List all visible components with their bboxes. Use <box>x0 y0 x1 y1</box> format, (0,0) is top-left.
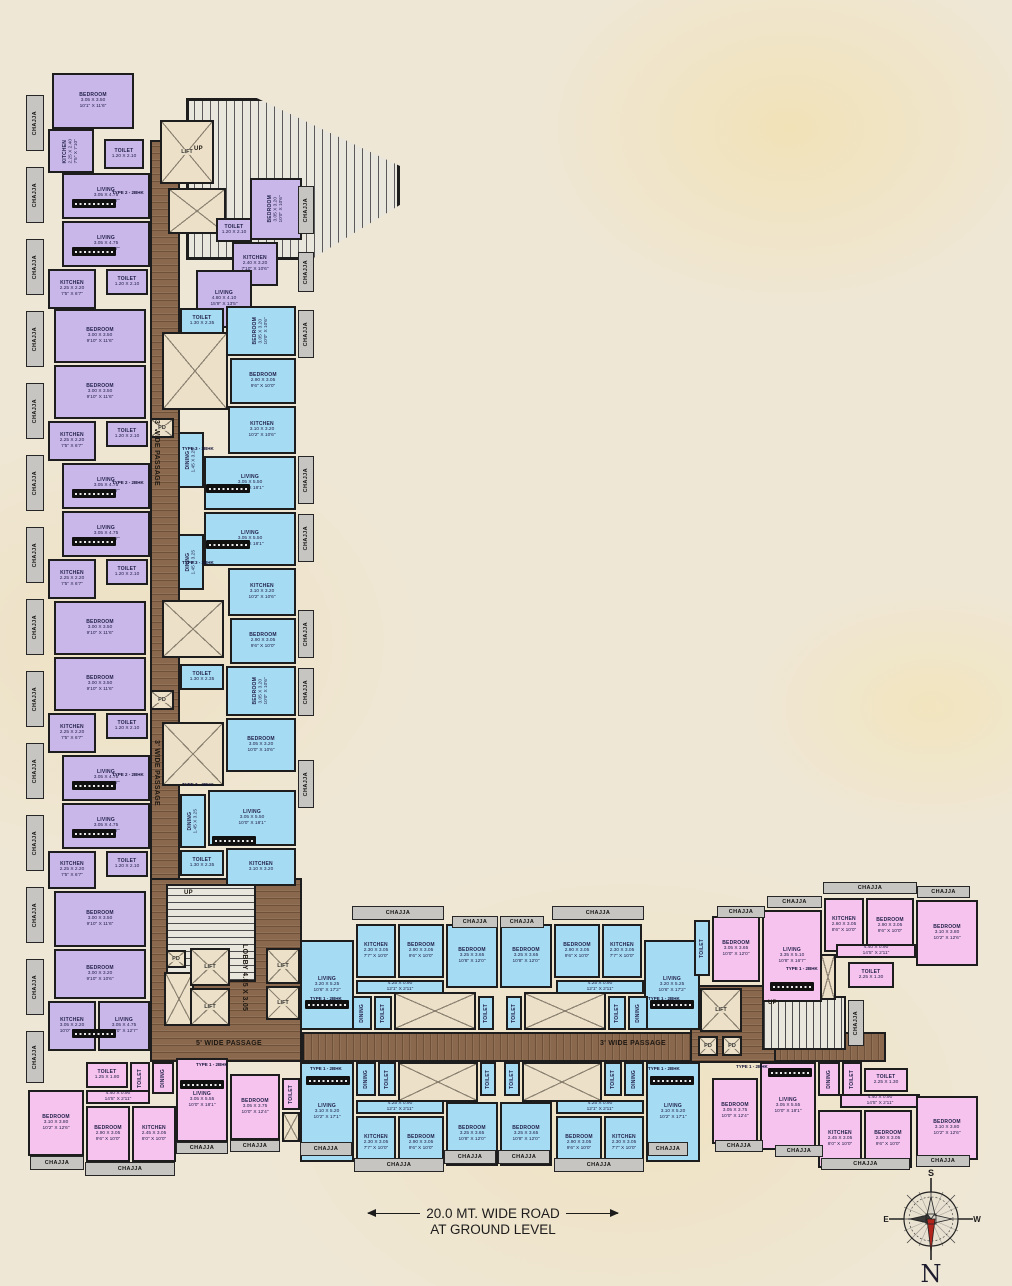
duct-shaft <box>524 992 606 1030</box>
chajja-strip: CHAJJA <box>85 1162 175 1176</box>
bedroom-room: BEDROOM3.10 X 3.8010'2" X 12'6" <box>28 1090 84 1156</box>
living-room: LIVING3.05 X 5.5010'0" X 18'1" <box>204 456 296 510</box>
chajja-strip: CHAJJA <box>354 1158 444 1172</box>
living-room: LIVING3.05 X 4.7510'0" X 12'7" <box>98 1001 150 1051</box>
toilet-room: TOILET <box>378 1062 396 1096</box>
chajja-strip: CHAJJA <box>26 1031 44 1083</box>
toilet-room: TOILET1.30 X 2.35 <box>180 308 224 334</box>
bedroom-room: BEDROOM3.10 X 3.8010'2" X 12'6" <box>916 900 978 966</box>
bedroom-room: BEDROOM3.00 X 3.509'10" X 11'6" <box>54 309 146 363</box>
duct-shaft <box>820 954 836 1000</box>
flat-number-bar <box>650 1076 694 1085</box>
chajja-strip: CHAJJA <box>717 906 765 918</box>
toilet-room: TOILET <box>604 1062 622 1096</box>
plan-label: 5' WIDE PASSAGE <box>196 1040 316 1052</box>
dining-room: DINING <box>818 1062 840 1096</box>
chajja-strip: CHAJJA <box>767 896 822 908</box>
kitchen-room: KITCHEN2.25 X 2.207'5" X 6'7" <box>48 559 96 599</box>
plan-label: UP <box>184 890 304 902</box>
duct-shaft <box>162 332 228 410</box>
internal-passage-room: 4.40 X 0.9014'5" X 2'11" <box>836 944 916 958</box>
bedroom-room: BEDROOM3.00 X 3.509'10" X 11'6" <box>54 601 146 655</box>
compass-east-label: E <box>883 1215 889 1224</box>
toilet-room: TOILET1.20 X 2.10 <box>106 421 148 447</box>
internal-passage-room: 4.25 X 0.9012'1" X 2'11" <box>356 1100 444 1114</box>
kitchen-room: KITCHEN2.25 X 2.207'5" X 6'7" <box>48 851 96 889</box>
toilet-room: TOILET <box>374 996 392 1030</box>
bedroom-room: BEDROOM3.05 X 3.5010'1" X 11'6" <box>52 73 134 129</box>
chajja-strip: CHAJJA <box>298 186 314 234</box>
toilet-room: TOILET1.30 X 2.35 <box>180 850 224 876</box>
flat-number-bar <box>206 540 250 549</box>
toilet-room: TOILET <box>608 996 626 1030</box>
duct-shaft <box>162 600 224 658</box>
toilet-room: TOILET1.20 X 2.10 <box>104 139 144 169</box>
road-label-line2: AT GROUND LEVEL <box>430 1222 556 1237</box>
kitchen-room: KITCHEN2.25 X 2.207'5" X 6'7" <box>48 269 96 309</box>
compass-rose-icon: S E W N <box>876 1168 986 1286</box>
chajja-strip: CHAJJA <box>26 959 44 1015</box>
pd-shaft: PD <box>166 950 186 968</box>
dining-room: DINING <box>152 1062 174 1094</box>
internal-passage-room: 4.40 X 0.9014'5" X 2'11" <box>840 1094 920 1108</box>
duct-shaft <box>522 1062 602 1102</box>
toilet-room: TOILET1.20 X 2.10 <box>106 269 148 295</box>
toilet-room: TOILET <box>504 1062 520 1096</box>
chajja-strip: CHAJJA <box>298 456 314 504</box>
bedroom-room: BEDROOM3.25 X 3.6510'8" X 12'0" <box>500 924 552 988</box>
chajja-strip: CHAJJA <box>554 1158 644 1172</box>
bedroom-room: BEDROOM2.90 X 3.059'6" X 10'0" <box>230 358 296 404</box>
bedroom-room: BEDROOM2.90 X 3.059'6" X 10'0" <box>398 924 444 978</box>
chajja-strip: CHAJJA <box>775 1145 823 1157</box>
unit-type-tag: TYPE 3 - 2BHK <box>182 560 236 567</box>
compass-west-label: W <box>973 1215 981 1224</box>
chajja-strip: CHAJJA <box>298 252 314 292</box>
chajja-strip: CHAJJA <box>298 610 314 658</box>
building-floor-plan: LIFTPDPDPDLIFTLIFTLIFTLIFTLIFTPDPDBEDROO… <box>0 0 1012 1286</box>
bedroom-room: BEDROOM3.00 X 3.509'10" X 11'6" <box>54 365 146 419</box>
bedroom-room: BEDROOM2.90 X 3.059'6" X 10'0" <box>230 618 296 664</box>
road-annotation: 20.0 MT. WIDE ROAD AT GROUND LEVEL <box>368 1206 618 1237</box>
duct-shaft <box>394 992 476 1030</box>
dining-room: DINING <box>628 996 648 1030</box>
bedroom-room: BEDROOM3.10 X 3.8010'2" X 12'6" <box>916 1096 978 1160</box>
unit-type-tag: TYPE 1 - 2BHK <box>310 1066 364 1073</box>
chajja-strip: CHAJJA <box>916 1155 970 1167</box>
toilet-room: TOILET2.25 X 1.30 <box>848 962 894 988</box>
duct-shaft <box>398 1062 478 1102</box>
kitchen-room: KITCHEN2.25 X 2.207'5" X 6'7" <box>48 421 96 461</box>
chajja-strip: CHAJJA <box>26 455 44 511</box>
plan-label: 3' WIDE PASSAGE <box>600 1040 720 1052</box>
living-room: LIVING3.05 X 4.7510'0" X 12'7" <box>62 803 150 849</box>
bedroom-room: BEDROOM3.00 X 3.509'10" X 11'6" <box>54 891 146 947</box>
chajja-strip: CHAJJA <box>352 906 444 920</box>
internal-passage-room: 4.40 X 0.9014'5" X 2'11" <box>86 1090 150 1104</box>
flat-number-bar <box>206 484 250 493</box>
unit-type-tag: TYPE 3 - 2BHK <box>182 446 236 453</box>
road-label-line1: 20.0 MT. WIDE ROAD <box>426 1206 560 1221</box>
kitchen-room: KITCHEN2.25 X 2.207'5" X 6'7" <box>48 713 96 753</box>
kitchen-room: KITCHEN3.10 X 3.2010'2" X 10'6" <box>228 568 296 616</box>
plan-label: UP <box>194 146 314 158</box>
chajja-strip: CHAJJA <box>298 668 314 716</box>
toilet-room: TOILET1.20 X 2.10 <box>106 713 148 739</box>
kitchen-room: KITCHEN2.30 X 3.057'7" X 10'0" <box>602 924 642 978</box>
flat-number-bar <box>770 982 814 991</box>
chajja-strip: CHAJJA <box>26 167 44 223</box>
toilet-room: TOILET <box>282 1078 300 1110</box>
flat-number-bar <box>72 247 116 256</box>
toilet-room: TOILET1.20 X 2.10 <box>216 218 252 242</box>
compass-south-label: S <box>928 1168 934 1178</box>
chajja-strip: CHAJJA <box>552 906 644 920</box>
bedroom-room: BEDROOM2.90 X 3.059'6" X 10'0" <box>86 1106 130 1162</box>
left-arrow-icon <box>368 1213 420 1214</box>
lift-shaft: LIFT <box>190 948 230 986</box>
toilet-room: TOILET <box>694 920 710 976</box>
chajja-strip: CHAJJA <box>298 310 314 358</box>
flat-number-bar <box>72 829 116 838</box>
chajja-strip: CHAJJA <box>26 527 44 583</box>
chajja-strip: CHAJJA <box>500 916 544 928</box>
dining-room: DINING1.45 X 3.25 <box>178 432 204 488</box>
toilet-room: TOILET2.25 X 1.30 <box>864 1068 908 1092</box>
internal-passage-room: 4.25 X 0.9012'1" X 2'11" <box>556 980 644 994</box>
unit-type-tag: TYPE 1 - 2BHK <box>736 1064 790 1071</box>
internal-passage-room: 4.25 X 0.9012'1" X 2'11" <box>556 1100 644 1114</box>
plan-label: 3' WIDE PASSAGE <box>148 420 160 540</box>
chajja-strip: CHAJJA <box>300 1142 352 1156</box>
chajja-strip: CHAJJA <box>230 1140 280 1152</box>
toilet-room: TOILET1.30 X 2.35 <box>180 664 224 690</box>
dining-room: DINING1.45 X 3.25 <box>180 794 206 848</box>
kitchen-room: KITCHEN3.05 X 2.2010'0" X 6'7" <box>48 1001 96 1051</box>
chajja-strip: CHAJJA <box>26 815 44 871</box>
chajja-strip: CHAJJA <box>823 882 917 894</box>
chajja-strip: CHAJJA <box>648 1142 688 1156</box>
chajja-strip: CHAJJA <box>26 383 44 439</box>
chajja-strip: CHAJJA <box>498 1150 550 1164</box>
chajja-strip: CHAJJA <box>26 599 44 655</box>
flat-number-bar <box>72 781 116 790</box>
dining-room: DINING <box>624 1062 644 1096</box>
flat-number-bar <box>180 1080 224 1089</box>
bedroom-room: BEDROOM3.05 X 3.7510'0" X 12'4" <box>230 1074 280 1140</box>
unit-type-tag: TYPE 1 - 2BHK <box>786 966 840 973</box>
chajja-strip: CHAJJA <box>26 743 44 799</box>
bedroom-room: BEDROOM3.00 X 3.209'10" X 10'6" <box>54 949 146 999</box>
chajja-strip: CHAJJA <box>452 916 498 928</box>
living-room: LIVING3.20 X 5.2510'6" X 17'2" <box>644 940 700 1030</box>
lift-shaft: LIFT <box>266 986 300 1020</box>
bedroom-room: BEDROOM3.05 X 3.6510'0" X 12'0" <box>712 916 760 982</box>
toilet-room: TOILET1.25 X 1.80 <box>86 1062 128 1088</box>
toilet-room: TOILET <box>842 1062 862 1096</box>
floor-plan-sheet: LIFTPDPDPDLIFTLIFTLIFTLIFTLIFTPDPDBEDROO… <box>0 0 1012 1286</box>
internal-passage-room: 4.25 X 0.9012'1" X 2'11" <box>356 980 444 994</box>
kitchen-room: KITCHEN2.25 X 2.407'5" X 7'10" <box>48 129 94 173</box>
compass-north-label: N <box>921 1260 942 1286</box>
kitchen-room: KITCHEN3.10 X 3.20 <box>226 848 296 886</box>
road-label-row: 20.0 MT. WIDE ROAD <box>368 1206 618 1221</box>
lift-shaft: LIFT <box>266 948 300 984</box>
pd-shaft: PD <box>150 690 174 710</box>
unit-type-tag: TYPE 1 - 2BHK <box>310 996 364 1003</box>
toilet-room: TOILET1.20 X 2.10 <box>106 559 148 585</box>
chajja-strip: CHAJJA <box>444 1150 496 1164</box>
chajja-strip: CHAJJA <box>26 887 44 943</box>
bedroom-room: BEDROOM3.05 X 3.2010'0" X 10'6" <box>226 718 296 772</box>
lift-shaft: LIFT <box>700 988 742 1032</box>
bedroom-room: BEDROOM3.25 X 3.6510'8" X 12'0" <box>446 924 498 988</box>
bedroom-room: BEDROOM3.05 X 3.7510'0" X 12'4" <box>712 1078 758 1144</box>
flat-number-bar <box>72 199 116 208</box>
unit-type-tag: TYPE 2 - 2BHK <box>112 190 166 197</box>
unit-type-tag: TYPE 1 - 2BHK <box>648 996 702 1003</box>
living-room: LIVING3.05 X 5.5010'0" X 18'1" <box>204 512 296 566</box>
living-room: LIVING3.05 X 4.7510'0" X 12'7" <box>62 511 150 557</box>
unit-type-tag: TYPE 3 - 2BHK <box>182 782 236 789</box>
chajja-strip: CHAJJA <box>30 1156 84 1170</box>
duct-shaft <box>162 722 224 786</box>
flat-number-bar <box>72 537 116 546</box>
unit-type-tag: TYPE 1 - 2BHK <box>648 1066 702 1073</box>
duct-shaft <box>282 1112 300 1142</box>
right-arrow-icon <box>566 1213 618 1214</box>
chajja-strip: CHAJJA <box>26 311 44 367</box>
chajja-strip: CHAJJA <box>176 1142 228 1154</box>
living-room: LIVING3.20 X 5.2510'6" X 17'2" <box>300 940 354 1030</box>
chajja-strip: CHAJJA <box>26 239 44 295</box>
pd-shaft: PD <box>722 1036 742 1056</box>
bedroom-room: BEDROOM3.05 X 3.2010'0" X 10'6" <box>226 306 296 356</box>
plan-label: 3' WIDE PASSAGE <box>148 740 160 860</box>
toilet-room: TOILET <box>480 1062 496 1096</box>
toilet-room: TOILET1.20 X 2.10 <box>106 851 148 877</box>
flat-number-bar <box>72 1029 116 1038</box>
bedroom-room: BEDROOM3.00 X 3.509'10" X 11'6" <box>54 657 146 711</box>
bedroom-room: BEDROOM3.05 X 3.2010'0" X 10'6" <box>250 178 302 240</box>
bedroom-room: BEDROOM2.90 X 3.059'6" X 10'0" <box>554 924 600 978</box>
flat-number-bar <box>212 836 256 845</box>
chajja-strip: CHAJJA <box>298 514 314 562</box>
plan-label: LOBBY 4.85 X 3.05 <box>236 944 248 1064</box>
kitchen-room: KITCHEN2.30 X 3.057'7" X 10'0" <box>356 924 396 978</box>
toilet-room: TOILET <box>506 996 522 1030</box>
living-room: LIVING3.05 X 4.7510'0" X 12'7" <box>62 221 150 267</box>
chajja-strip: CHAJJA <box>917 886 970 898</box>
lift-shaft: LIFT <box>190 988 230 1026</box>
toilet-room: TOILET <box>478 996 494 1030</box>
bedroom-room: BEDROOM3.05 X 3.2010'0" X 10'6" <box>226 666 296 716</box>
flat-number-bar <box>306 1076 350 1085</box>
chajja-strip: CHAJJA <box>298 760 314 808</box>
flat-number-bar <box>72 489 116 498</box>
chajja-strip: CHAJJA <box>26 95 44 151</box>
living-room: LIVING3.05 X 5.5510'0" X 18'1" <box>176 1058 228 1142</box>
chajja-strip: CHAJJA <box>715 1140 763 1152</box>
kitchen-room: KITCHEN3.10 X 3.2010'2" X 10'6" <box>228 406 296 454</box>
kitchen-room: KITCHEN2.45 X 3.058'0" X 10'0" <box>132 1106 176 1162</box>
chajja-strip: CHAJJA <box>26 671 44 727</box>
plan-label: UP <box>768 1000 888 1012</box>
